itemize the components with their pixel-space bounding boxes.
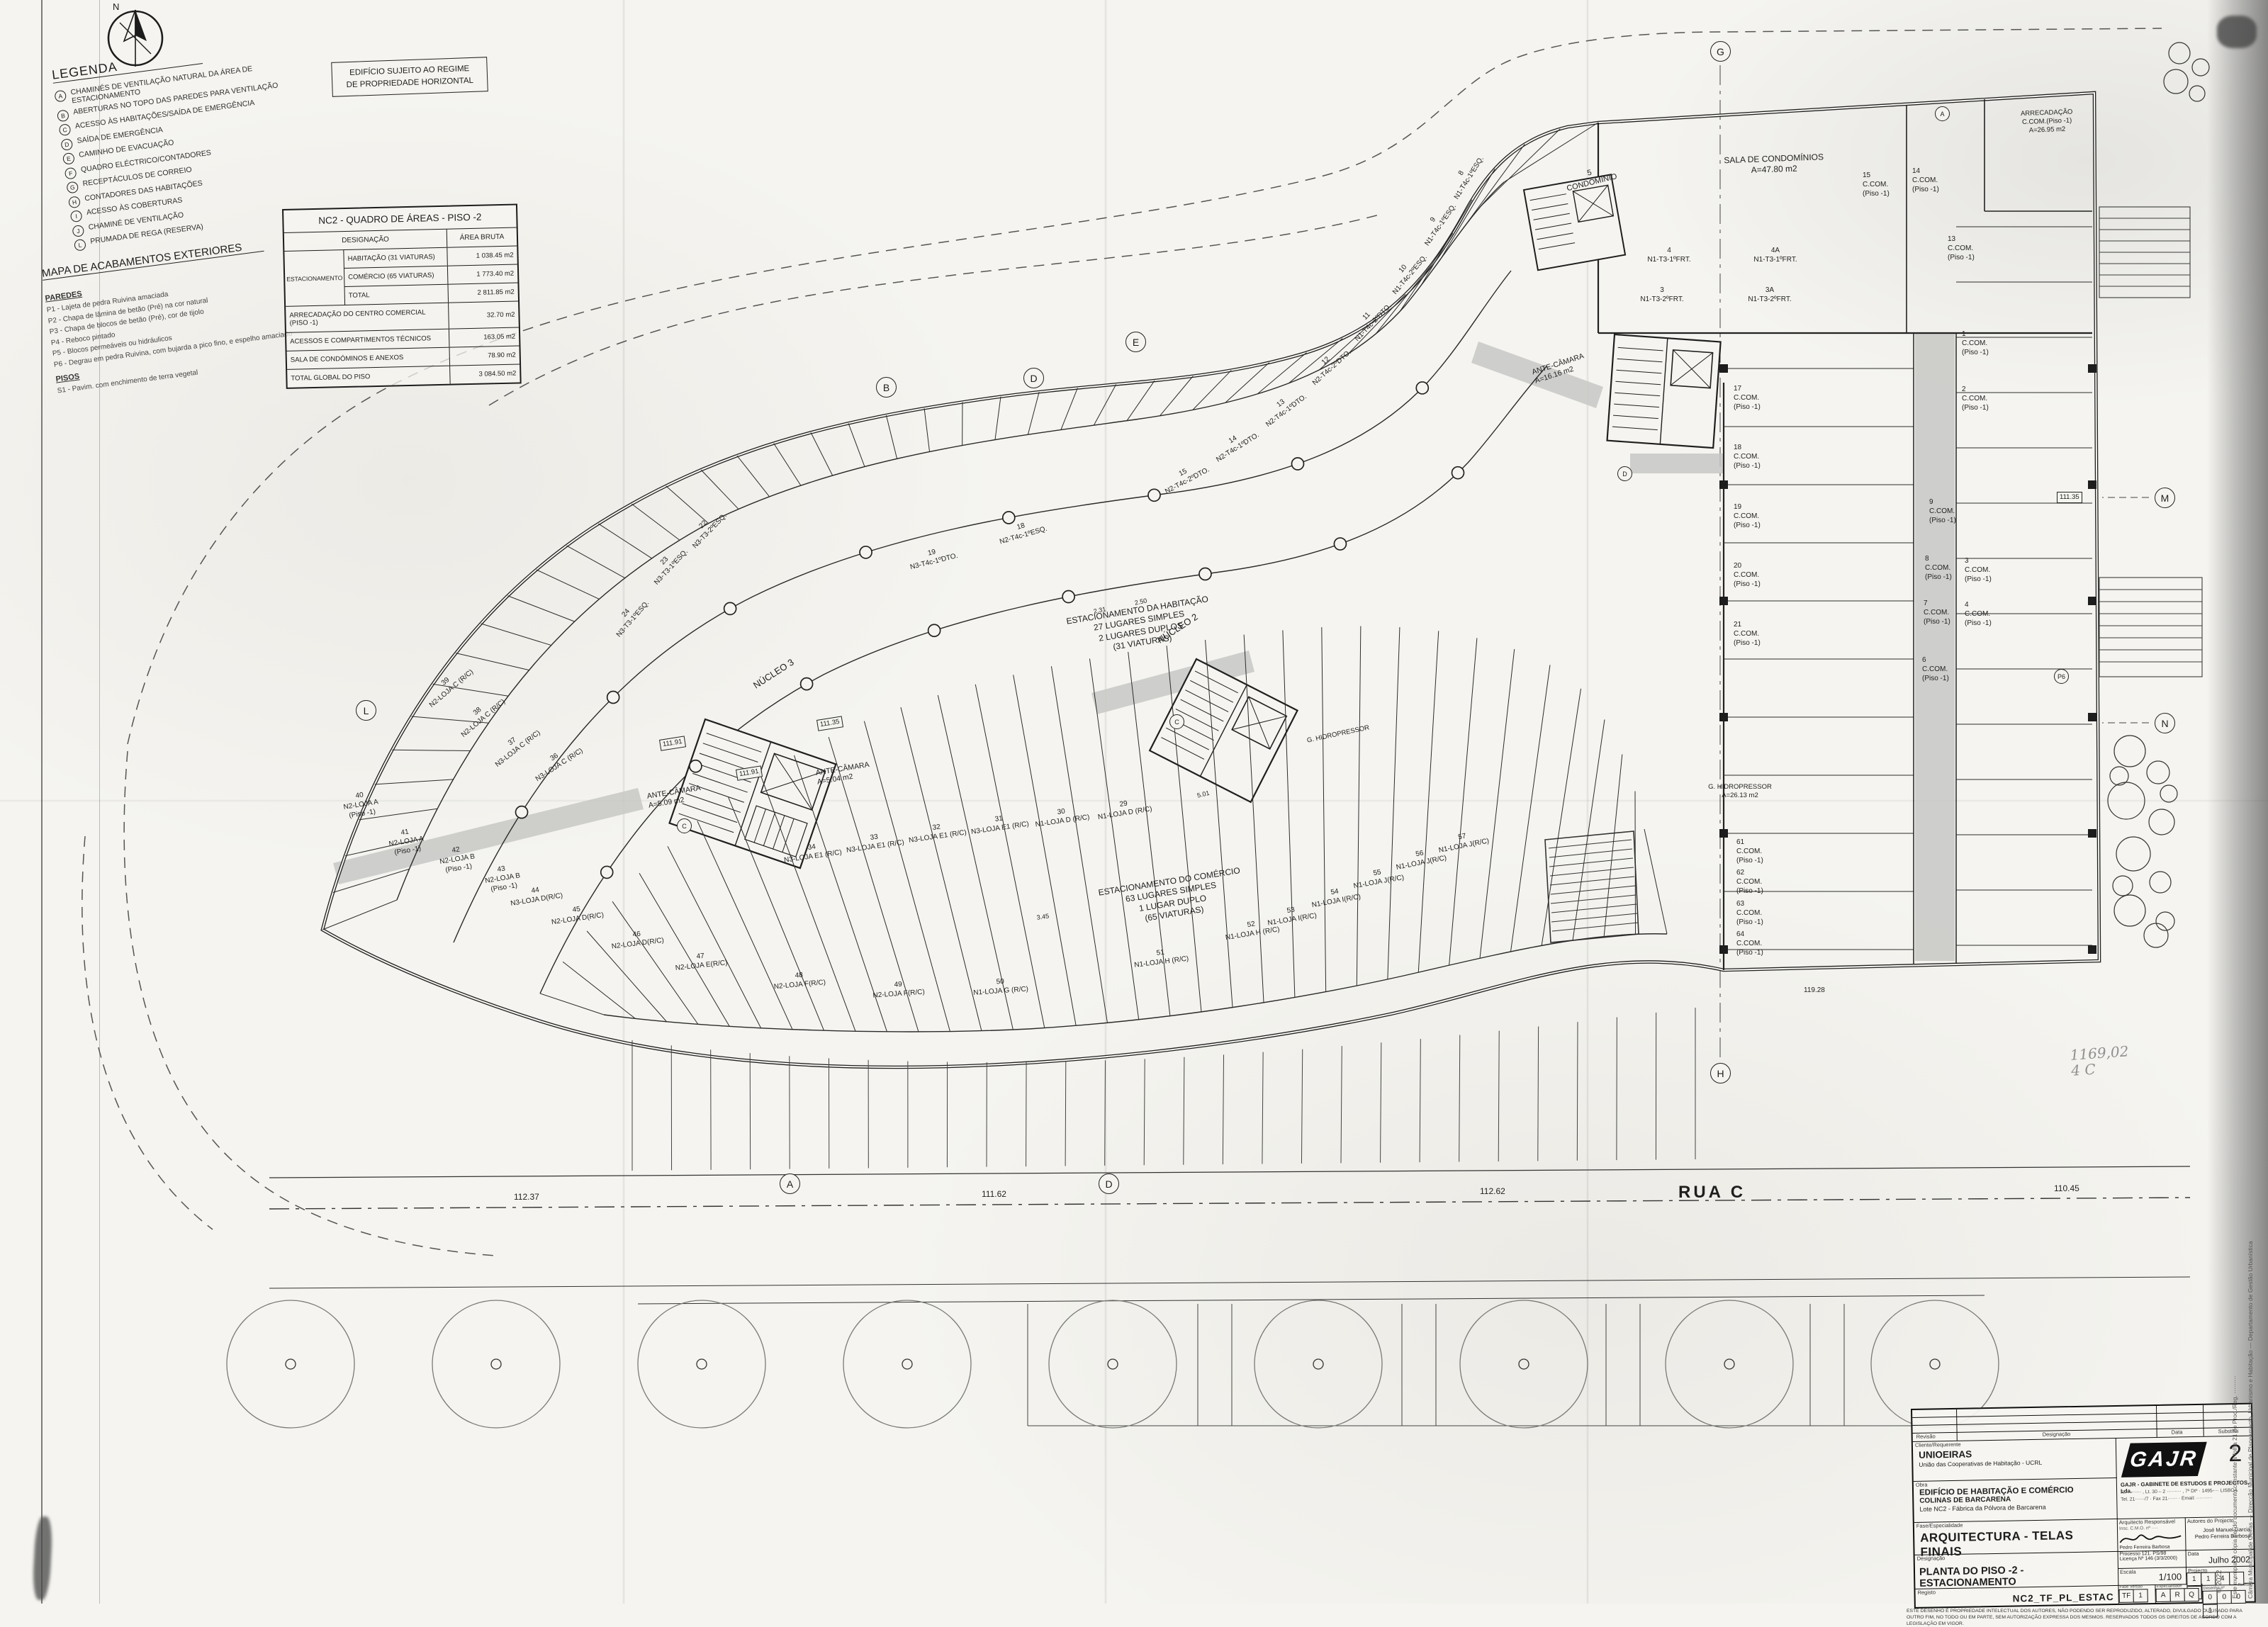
plan-annotation: 2 C.COM. (Piso -1)	[1962, 385, 1989, 412]
plan-annotation: 38 N2-LOJA C (R/C)	[445, 683, 517, 747]
grid-bubble: E	[1125, 332, 1146, 352]
plan-annotation: 13 C.COM. (Piso -1)	[1948, 235, 1975, 262]
plan-annotation: 1169,02 4 C	[2070, 1043, 2131, 1079]
revision-col-label: Revisão	[1914, 1432, 1938, 1441]
legend-item-key: J	[72, 224, 84, 237]
grid-bubble: B	[876, 377, 897, 398]
value-cell: 1	[2133, 1589, 2148, 1602]
value-cell: R	[2169, 1588, 2184, 1601]
row-value: 1 773.40 m2	[447, 264, 518, 283]
plan-annotation: 112.62	[1480, 1186, 1505, 1197]
plan-annotation: 20 C.COM. (Piso -1)	[1734, 562, 1761, 589]
plan-annotation: 111.91	[659, 736, 686, 751]
legend-item-key: L	[74, 239, 86, 252]
plan-annotation: 40 N2-LOJA A (Piso -1)	[320, 786, 402, 825]
margin-copyright: © 2022	[2216, 1570, 2223, 1593]
value-cell: Q	[2184, 1588, 2199, 1601]
plan-annotation: 57 N1-LOJA J(R/C)	[1423, 826, 1503, 858]
value-cell: TF	[2118, 1589, 2133, 1603]
legend-ref-marker: C	[1169, 714, 1184, 729]
plan-annotation: SALA DE CONDOMÍNIOS A=47.80 m2	[1708, 152, 1840, 178]
plan-annotation: ANTE-CÂMARA A=5.04 m2	[815, 760, 872, 788]
plan-annotation: 3.45	[1036, 913, 1050, 923]
plan-annotation: G. HIDROPRESSOR A=26.13 m2	[1694, 783, 1786, 800]
margin-copy-statement: Este exemplar é cópia fiel do documento …	[2231, 1375, 2238, 1599]
grid-bubble: L	[356, 700, 376, 721]
plan-annotation: 46 N2-LOJA D(R/C)	[597, 926, 677, 954]
gajr-logo-icon: GAJR	[2121, 1442, 2207, 1477]
plan-annotation: 3 N1-T3-2ºFRT.	[1623, 286, 1701, 305]
margin-edge-text: ··· ··· ········ ··· ·· ········· ···· ·…	[2264, 1101, 2268, 1248]
client-cell: Cliente/Requerente UNIOEIRAS União das C…	[1913, 1438, 2117, 1482]
value-cell: A	[2155, 1589, 2170, 1602]
plan-annotation: 50 N1-LOJA G (R/C)	[961, 975, 1040, 998]
plan-annotation: 62 C.COM. (Piso -1)	[1736, 869, 1763, 896]
row-label: TOTAL	[345, 285, 448, 305]
authors-cell: Autores do Projecto José Manuel Garcia P…	[2185, 1516, 2254, 1551]
plan-annotation: 110.45	[2054, 1183, 2079, 1194]
logo-text: GAJR	[2128, 1447, 2199, 1473]
grid-bubble: M	[2155, 488, 2175, 508]
legend-item-key: E	[62, 152, 75, 165]
margin-municipality: Câmara Municipal de Oeiras — Direcção Mu…	[2247, 1241, 2254, 1599]
row-value: 3 084.50 m2	[449, 364, 520, 383]
plan-annotation: 1 C.COM. (Piso -1)	[1962, 330, 1989, 357]
grid-bubble: A	[780, 1173, 800, 1194]
plan-annotation: 24 N3-T3-1ºESQ.	[597, 581, 662, 652]
plan-annotation: 119.28	[1804, 986, 1825, 996]
horizontal-property-note: EDIFÍCIO SUJEITO AO REGIME DE PROPRIEDAD…	[331, 57, 488, 97]
plan-annotation: 14 C.COM. (Piso -1)	[1912, 167, 1939, 194]
designation-col-label: Designação	[2040, 1430, 2073, 1439]
plan-annotation: ESTACIONAMENTO DO COMÉRCIO 63 LUGARES SI…	[1088, 864, 1256, 933]
legend-item-key: D	[60, 138, 73, 151]
plan-annotation: 111.35	[2057, 492, 2082, 503]
legend-item-key: B	[57, 109, 69, 122]
phase-version-cells: TF1	[2118, 1589, 2155, 1603]
plan-annotation: 3 C.COM. (Piso -1)	[1965, 557, 1992, 584]
plan-annotation: 5.01	[1196, 789, 1211, 800]
licence-number: Licença Nº 146 (3/3/2000)	[2118, 1555, 2186, 1562]
plan-annotation: 9 C.COM. (Piso -1)	[1929, 498, 1956, 525]
legal-note: ESTE DESENHO É PROPRIEDADE INTELECTUAL D…	[1907, 1609, 2252, 1627]
specialty-cells: ARQ	[2155, 1588, 2201, 1602]
plan-annotation: 29 N1-LOJA D (R/C)	[1084, 794, 1164, 824]
register-label: Registo	[1915, 1588, 1938, 1597]
areas-table: NC2 - QUADRO DE ÁREAS - PISO -2 DESIGNAÇ…	[282, 203, 522, 388]
plan-annotation: 63 C.COM. (Piso -1)	[1736, 900, 1763, 927]
register-cell: Registo NC2_TF_PL_ESTAC	[1915, 1585, 2118, 1607]
plan-annotation: 49 N2-LOJA F(R/C)	[859, 978, 938, 1001]
col-header-designacao: DESIGNAÇÃO	[284, 230, 447, 251]
author-2: Pedro Ferreira Barbosa	[2185, 1533, 2253, 1541]
plan-annotation: 39 N2-LOJA C (R/C)	[413, 653, 485, 717]
plan-annotation: 19 N3-T4c-1ºDTO.	[893, 539, 973, 575]
drawing-title-cell: Designação PLANTA DO PISO -2 - ESTACIONA…	[1915, 1551, 2119, 1589]
grid-bubble: D	[1023, 368, 1044, 388]
grid-bubble: H	[1710, 1063, 1731, 1083]
title-block: Revisão Designação Data Substitui Client…	[1911, 1403, 2256, 1609]
legend-item-key: A	[54, 90, 67, 103]
plan-annotation: 21 C.COM. (Piso -1)	[1734, 621, 1761, 648]
specialty-cell: Especialidade ARQ	[2155, 1584, 2202, 1603]
grid-bubble: N	[2155, 713, 2175, 733]
phase-cell: Fase/Especialidade ARQUITECTURA - TELAS …	[1914, 1519, 2118, 1555]
plan-annotation: 48 N2-LOJA F(R/C)	[760, 968, 839, 993]
row-label: ACESSOS E COMPARTIMENTOS TÉCNICOS	[286, 330, 449, 351]
row-value: 78.90 m2	[449, 346, 520, 365]
plan-annotation: 17 C.COM. (Piso -1)	[1734, 385, 1761, 412]
plan-annotation: 6 C.COM. (Piso -1)	[1922, 656, 1949, 683]
legend-ref-marker: D	[1617, 466, 1632, 481]
date-col-label: Data	[2169, 1428, 2185, 1436]
legend-ref-marker: P6	[2054, 669, 2069, 684]
plan-annotation: 111.35	[816, 716, 843, 731]
col-header-area: ÁREA BRUTA	[447, 228, 517, 247]
plan-annotation: 3A N1-T3-2ºFRT.	[1731, 286, 1809, 305]
work-cell: Obra EDIFÍCIO DE HABITAÇÃO E COMÉRCIO CO…	[1914, 1477, 2118, 1523]
company-contacts: Tel. 21······/7 · Fax 21······ · Email: …	[2121, 1496, 2212, 1502]
plan-annotation: 51 N1-LOJA H (R/C)	[1121, 945, 1201, 972]
legend-item-key: H	[68, 196, 81, 208]
plan-annotation: 4 N1-T3-1ºFRT.	[1630, 247, 1708, 265]
legend-ref-marker: C	[677, 818, 692, 833]
grid-bubble: D	[1099, 1173, 1119, 1194]
row-value: 1 038.45 m2	[447, 246, 517, 265]
row-label: TOTAL GLOBAL DO PISO	[287, 366, 450, 388]
scale-cell: Escala 1/100	[2118, 1567, 2186, 1586]
process-cell: Processo 121. PS/98 Licença Nº 146 (3/3/…	[2118, 1550, 2186, 1569]
plan-annotation: G. HIDROPRESSOR	[1306, 724, 1370, 745]
plan-annotation: 18 N2-T4c-1ºESQ.	[982, 512, 1062, 551]
plan-annotation: 64 C.COM. (Piso -1)	[1736, 930, 1763, 957]
company-address: R. ········· , Lt. 30 – 2 ········· , 7º…	[2121, 1488, 2238, 1495]
plan-annotation: 18 C.COM. (Piso -1)	[1734, 444, 1761, 471]
plan-annotation: 15 C.COM. (Piso -1)	[1863, 171, 1890, 198]
plan-annotation: 112.37	[514, 1192, 539, 1203]
plan-annotation: 61 C.COM. (Piso -1)	[1736, 838, 1763, 865]
plan-annotation: 8 C.COM. (Piso -1)	[1925, 555, 1952, 582]
plan-annotation: 7 C.COM. (Piso -1)	[1924, 599, 1950, 626]
phase-version-cell: Fase Versão TF1	[2118, 1584, 2155, 1604]
plan-annotation: 4 C.COM. (Piso -1)	[1965, 601, 1992, 628]
date-cell: Data Julho 2002	[2186, 1549, 2254, 1568]
drawing-title-value: PLANTA DO PISO -2 - ESTACIONAMENTO	[1915, 1559, 2118, 1589]
plan-annotation: 4A N1-T3-1ºFRT.	[1736, 247, 1814, 265]
plan-annotation: RUA C	[1678, 1182, 1746, 1204]
plan-annotation: 111.62	[982, 1189, 1006, 1200]
plan-annotation: NÚCLEO 3	[751, 657, 797, 692]
plan-annotation: 19 C.COM. (Piso -1)	[1734, 503, 1761, 530]
row-label: SALA DE CONDÓMINOS E ANEXOS	[287, 348, 450, 369]
row-label: HABITAÇÃO (31 VIATURAS)	[344, 248, 447, 268]
legend-item-key: C	[59, 123, 72, 136]
plan-annotation: 45 N2-LOJA D(R/C)	[537, 901, 617, 930]
row-label: COMÉRCIO (65 VIATURAS)	[344, 266, 447, 286]
row-value: 163.05 m2	[449, 327, 520, 347]
register-value: NC2_TF_PL_ESTAC	[2013, 1592, 2114, 1604]
responsible-architect-cell: Arquitecto Responsável Insc. C.M.O. nº ·…	[2117, 1517, 2186, 1552]
grid-bubble: G	[1710, 41, 1731, 62]
plan-annotation: 15 N2-T4c-2ºDTO.	[1147, 451, 1224, 503]
row-value: 32.70 m2	[448, 301, 519, 328]
plan-annotation: 47 N2-LOJA E(R/C)	[661, 949, 741, 975]
group-label: ESTACIONAMENTO	[284, 250, 344, 306]
scanned-floor-plan-sheet: { "sheet": { "revisao_label": "Revisão",…	[0, 0, 2268, 1604]
plan-annotation: ANTE-CÂMARA A=5.09 m2	[646, 784, 703, 811]
plan-annotation: 5 CONDOMÍNIO	[1552, 159, 1629, 197]
plan-annotation: ANTE-CÂMARA A=16.16 m2	[1531, 351, 1588, 386]
row-value: 2 811.85 m2	[447, 283, 518, 302]
legend-item-key: I	[70, 210, 83, 223]
row-label: ARRECADAÇÃO DO CENTRO COMERCIAL (PISO -1…	[286, 303, 449, 332]
legend-ref-marker: A	[1935, 106, 1950, 121]
legend-item-key: G	[66, 181, 79, 194]
legend-item-key: F	[64, 167, 77, 179]
plan-annotation: ARRECADAÇÃO C.COM.(Piso -1) A=26.95 m2	[2002, 108, 2092, 137]
plan-annotation: 111.91	[736, 765, 763, 781]
